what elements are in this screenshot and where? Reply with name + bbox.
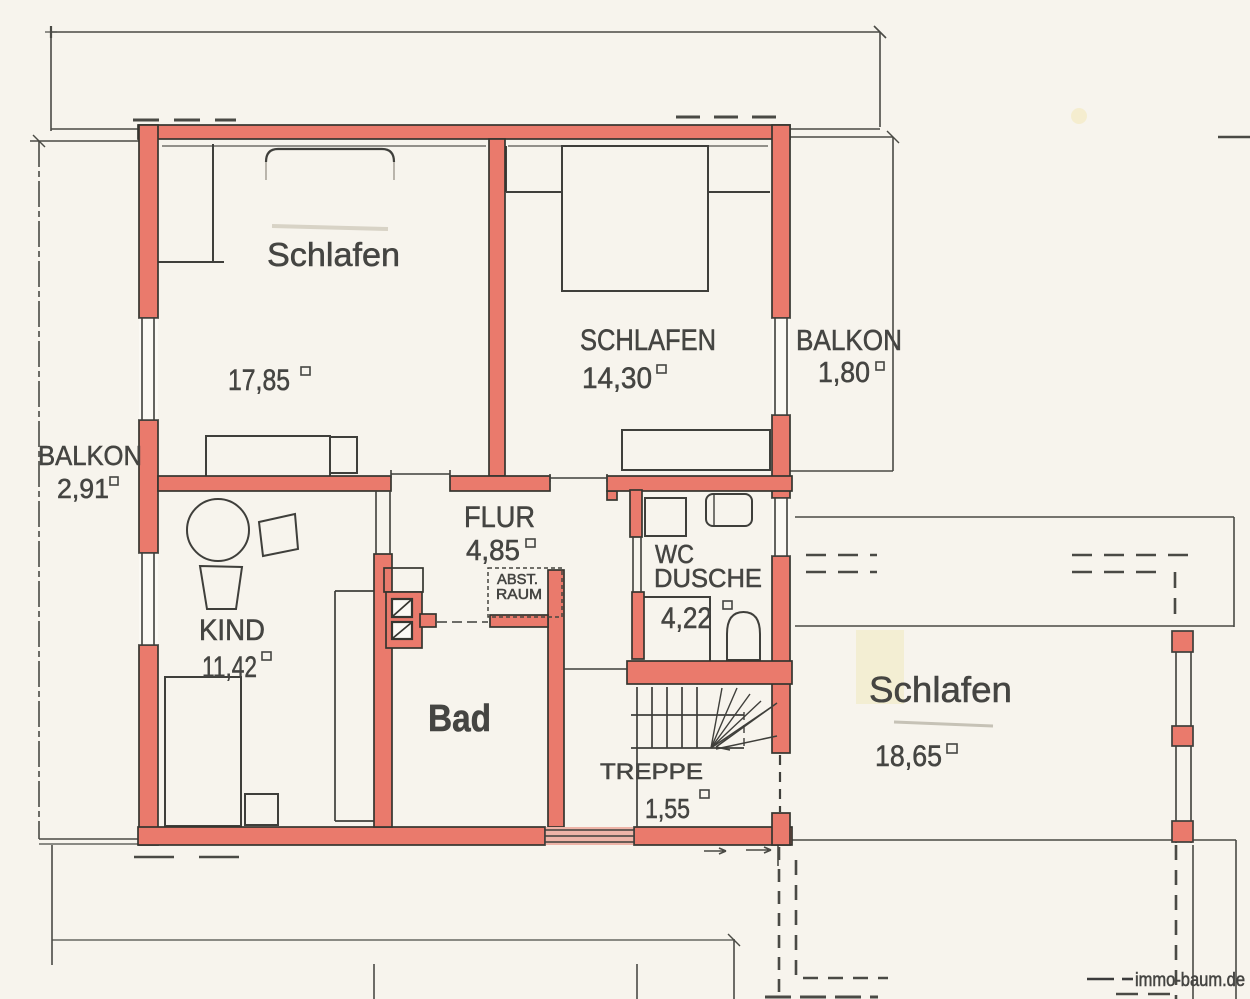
svg-text:immo-baum.de: immo-baum.de (1135, 970, 1245, 991)
svg-text:4,22: 4,22 (661, 602, 712, 635)
svg-text:2,91: 2,91 (57, 473, 109, 504)
svg-text:BALKON: BALKON (38, 440, 142, 471)
svg-text:RAUM: RAUM (496, 586, 542, 603)
svg-text:14,30: 14,30 (582, 362, 652, 395)
svg-text:Schlafen: Schlafen (267, 236, 400, 273)
svg-text:1,80: 1,80 (818, 357, 870, 389)
svg-text:11,42: 11,42 (202, 651, 257, 684)
svg-text:4,85: 4,85 (466, 535, 520, 567)
svg-text:17,85: 17,85 (228, 364, 290, 397)
svg-text:1,55: 1,55 (645, 793, 690, 824)
svg-text:18,65: 18,65 (875, 740, 942, 773)
svg-text:Bad: Bad (428, 698, 491, 740)
svg-text:BALKON: BALKON (796, 325, 902, 357)
svg-text:KIND: KIND (199, 614, 265, 647)
svg-text:DUSCHE: DUSCHE (654, 563, 762, 593)
svg-text:SCHLAFEN: SCHLAFEN (580, 324, 716, 357)
svg-text:Schlafen: Schlafen (869, 669, 1012, 710)
svg-text:TREPPE: TREPPE (600, 759, 703, 784)
svg-text:FLUR: FLUR (464, 501, 535, 534)
